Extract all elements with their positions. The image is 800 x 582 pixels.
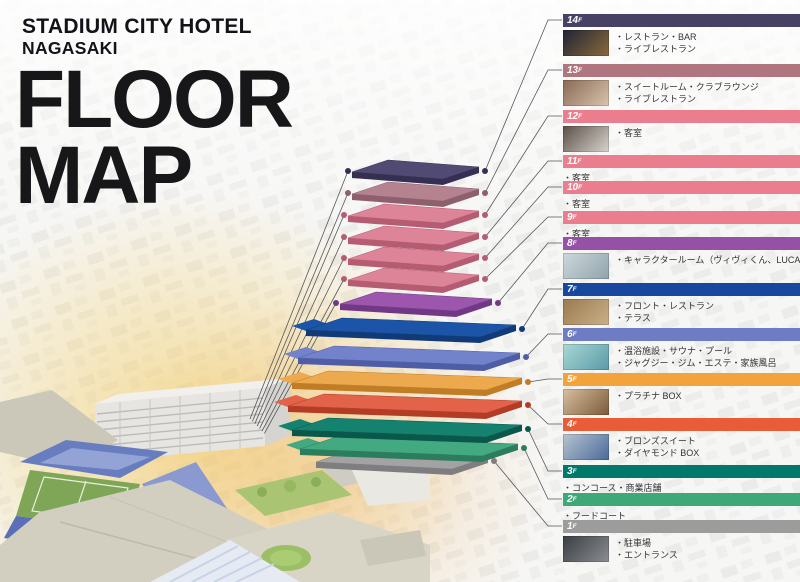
floor-items: ・キャラクタールーム（ヴィヴィくん、LUCA） xyxy=(615,254,800,266)
floor-legend: 14F・レストラン・BAR・ライブレストラン13F・スイートルーム・クラブラウン… xyxy=(563,0,800,582)
bronze-suite-photo xyxy=(563,434,609,460)
floor-suffix: F xyxy=(573,469,577,476)
floor-item: ・温浴施設・サウナ・プール xyxy=(615,345,777,357)
entrance-photo xyxy=(563,536,609,562)
floor-plate-6f xyxy=(284,346,520,371)
floor-plate-14f xyxy=(352,160,479,185)
floor-number: 14 xyxy=(567,16,578,26)
leader-line-right-14f xyxy=(485,20,562,171)
floor-bar-7f: 7F xyxy=(563,283,800,296)
page-title: FLOOR MAP xyxy=(15,62,292,215)
floor-item: ・客室 xyxy=(615,127,642,139)
floor-suffix: F xyxy=(578,185,582,192)
floor-dot-right-2f xyxy=(521,445,527,451)
floor-dot-left-11f xyxy=(341,234,347,240)
floor-bar-4f: 4F xyxy=(563,418,800,431)
floor-items: ・スイートルーム・クラブラウンジ・ライブレストラン xyxy=(615,81,759,105)
floor-plate-13f xyxy=(352,182,479,207)
floor-item: ・レストラン・BAR xyxy=(615,31,697,43)
floor-plate-5f xyxy=(278,371,522,396)
leader-line-right-5f xyxy=(528,379,562,382)
floor-item: ・ダイヤモンド BOX xyxy=(615,447,699,459)
floor-plate-9f xyxy=(348,268,479,293)
floor-number: 13 xyxy=(567,66,578,76)
leader-line-right-8f xyxy=(498,243,562,303)
leader-line-right-11f xyxy=(485,161,562,237)
hotel-name-line1: STADIUM CITY HOTEL xyxy=(22,15,252,38)
floor-plate-12f xyxy=(348,204,479,229)
floor-bar-9f: 9F xyxy=(563,211,800,224)
floor-suffix: F xyxy=(573,215,577,222)
leader-line-right-12f xyxy=(485,116,562,215)
floor-dot-left-9f xyxy=(341,276,347,282)
floor-dot-left-14f xyxy=(345,168,351,174)
legend-row-9f: 9F・客室 xyxy=(563,211,800,224)
floor-item: ・ジャグジー・ジム・エステ・家族風呂 xyxy=(615,357,777,369)
guest-room-photo xyxy=(563,126,609,152)
leader-line-right-13f xyxy=(485,70,562,193)
floor-bar-1f: 1F xyxy=(563,520,800,533)
title-line-floor: FLOOR xyxy=(15,62,292,138)
floor-item: ・キャラクタールーム（ヴィヴィくん、LUCA） xyxy=(615,254,800,266)
floor-suffix: F xyxy=(578,18,582,25)
character-room-photo xyxy=(563,253,609,279)
legend-row-13f: 13F・スイートルーム・クラブラウンジ・ライブレストラン xyxy=(563,64,800,77)
floor-items: ・温浴施設・サウナ・プール・ジャグジー・ジム・エステ・家族風呂 xyxy=(615,345,777,369)
floor-bar-11f: 11F xyxy=(563,155,800,168)
leader-line-right-3f xyxy=(528,429,562,471)
leader-line-right-4f xyxy=(528,405,562,424)
floor-bar-8f: 8F xyxy=(563,237,800,250)
floor-dot-right-8f xyxy=(495,300,501,306)
restaurant-bar-photo xyxy=(563,30,609,56)
floor-item: ・スイートルーム・クラブラウンジ xyxy=(615,81,759,93)
floor-bar-6f: 6F xyxy=(563,328,800,341)
floor-item: ・フロント・レストラン xyxy=(615,300,714,312)
floor-suffix: F xyxy=(573,422,577,429)
legend-row-12f: 12F・客室 xyxy=(563,110,800,123)
floor-dot-right-13f xyxy=(482,190,488,196)
legend-row-10f: 10F・客室 xyxy=(563,181,800,194)
legend-row-11f: 11F・客室 xyxy=(563,155,800,168)
floor-bar-5f: 5F xyxy=(563,373,800,386)
floor-number: 10 xyxy=(567,183,578,193)
floor-bar-13f: 13F xyxy=(563,64,800,77)
legend-row-14f: 14F・レストラン・BAR・ライブレストラン xyxy=(563,14,800,27)
floor-dot-right-9f xyxy=(482,276,488,282)
legend-row-1f: 1F・駐車場・エントランス xyxy=(563,520,800,533)
floor-bar-10f: 10F xyxy=(563,181,800,194)
floor-number: 12 xyxy=(567,112,578,122)
floor-dot-right-11f xyxy=(482,234,488,240)
floor-dot-left-13f xyxy=(345,190,351,196)
floor-items: ・客室 xyxy=(615,127,642,139)
floor-bar-12f: 12F xyxy=(563,110,800,123)
floor-items: ・プラチナ BOX xyxy=(615,390,682,402)
floor-plate-8f xyxy=(340,292,492,317)
leader-line-right-7f xyxy=(522,289,562,329)
floor-number: 11 xyxy=(567,157,577,167)
floor-items: ・駐車場・エントランス xyxy=(615,537,678,561)
floor-items: ・ブロンズスイート・ダイヤモンド BOX xyxy=(615,435,699,459)
floor-item: ・ライブレストラン xyxy=(615,43,697,55)
leader-line-left-12f xyxy=(255,215,344,424)
floor-suffix: F xyxy=(577,159,581,166)
leader-line-right-9f xyxy=(485,217,562,279)
floor-suffix: F xyxy=(573,332,577,339)
floor-dot-right-1f xyxy=(491,458,497,464)
floor-items: ・客室 xyxy=(563,198,590,210)
legend-row-3f: 3F・コンコース・商業店舗 xyxy=(563,465,800,478)
floor-item: ・プラチナ BOX xyxy=(615,390,682,402)
floor-suffix: F xyxy=(573,287,577,294)
floor-item: ・エントランス xyxy=(615,549,678,561)
floor-bar-2f: 2F xyxy=(563,493,800,506)
floor-dot-right-6f xyxy=(523,354,529,360)
floor-dot-left-10f xyxy=(341,255,347,261)
legend-row-5f: 5F・プラチナ BOX xyxy=(563,373,800,386)
floor-bar-3f: 3F xyxy=(563,465,800,478)
legend-row-6f: 6F・温浴施設・サウナ・プール・ジャグジー・ジム・エステ・家族風呂 xyxy=(563,328,800,341)
floor-item: ・ライブレストラン xyxy=(615,93,759,105)
floor-suffix: F xyxy=(573,377,577,384)
floor-plate-10f xyxy=(348,247,479,272)
leader-line-right-6f xyxy=(526,334,562,357)
platinum-box-photo xyxy=(563,389,609,415)
floor-item: ・駐車場 xyxy=(615,537,678,549)
title-line-map: MAP xyxy=(15,138,292,214)
floor-dot-right-7f xyxy=(519,326,525,332)
legend-row-2f: 2F・フードコート xyxy=(563,493,800,506)
floor-plate-4f xyxy=(274,394,522,419)
floor-suffix: F xyxy=(578,68,582,75)
legend-row-8f: 8F・キャラクタールーム（ヴィヴィくん、LUCA） xyxy=(563,237,800,250)
floor-plate-11f xyxy=(348,226,479,251)
legend-row-7f: 7F・フロント・レストラン・テラス xyxy=(563,283,800,296)
leader-line-left-8f xyxy=(264,303,336,433)
floor-dot-left-8f xyxy=(333,300,339,306)
legend-row-4f: 4F・ブロンズスイート・ダイヤモンド BOX xyxy=(563,418,800,431)
floor-bar-14f: 14F xyxy=(563,14,800,27)
floor-item: ・ブロンズスイート xyxy=(615,435,699,447)
floor-dot-right-12f xyxy=(482,212,488,218)
spa-pool-photo xyxy=(563,344,609,370)
floor-dot-left-12f xyxy=(341,212,347,218)
leader-line-right-2f xyxy=(524,448,562,499)
floor-suffix: F xyxy=(573,241,577,248)
hotel-name: STADIUM CITY HOTEL NAGASAKI xyxy=(22,16,252,58)
floor-items: ・レストラン・BAR・ライブレストラン xyxy=(615,31,697,55)
floor-item: ・客室 xyxy=(563,198,590,210)
floor-suffix: F xyxy=(573,497,577,504)
floor-plate-3f xyxy=(278,418,522,443)
floor-suffix: F xyxy=(578,114,582,121)
floor-dot-right-14f xyxy=(482,168,488,174)
floor-dot-right-4f xyxy=(525,402,531,408)
floor-dot-right-5f xyxy=(525,379,531,385)
floor-dot-right-10f xyxy=(482,255,488,261)
floor-items: ・フロント・レストラン・テラス xyxy=(615,300,714,324)
suite-room-photo xyxy=(563,80,609,106)
floor-map-page: { "header": { "hotel_name_line1": "STADI… xyxy=(0,0,800,582)
floor-dot-right-3f xyxy=(525,426,531,432)
floor-item: ・テラス xyxy=(615,312,714,324)
floor-suffix: F xyxy=(573,524,577,531)
front-restaurant-photo xyxy=(563,299,609,325)
